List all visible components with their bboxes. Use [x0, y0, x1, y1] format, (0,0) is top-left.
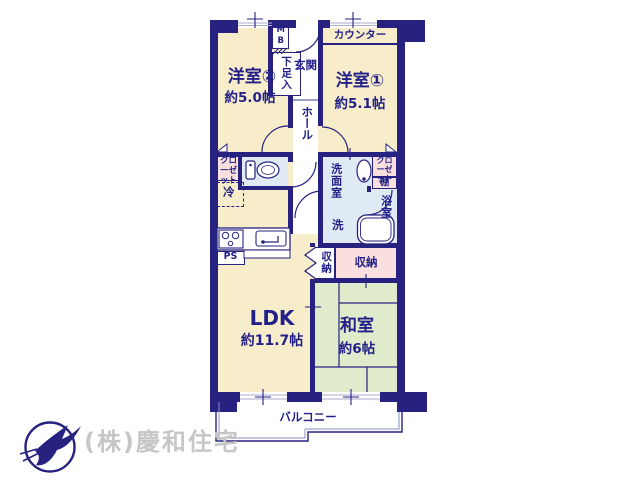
company-name: (株)慶和住宅	[84, 429, 240, 457]
entrance-label: 玄関	[294, 59, 317, 72]
wall-segment	[310, 243, 315, 247]
window-opening	[238, 20, 272, 28]
wall-segment	[367, 186, 371, 192]
room1-size: 約5.1帖	[320, 97, 400, 113]
closet-left-label: クローゼット	[217, 157, 240, 186]
wall-segment	[288, 186, 293, 234]
ldk-name: LDK	[222, 307, 322, 330]
entrance-step-line	[293, 99, 318, 101]
washitsu-name: 和室	[316, 317, 398, 337]
floorplan-page: 洋室② 約5.0帖 洋室① 約5.1帖 カウンター MB 下足入 玄関 ホール …	[0, 0, 640, 480]
room2-size: 約5.0帖	[210, 91, 290, 107]
window-opening	[330, 20, 377, 28]
ldk-size: 約11.7帖	[222, 333, 322, 349]
hall-label: ホール	[300, 106, 313, 141]
shoe-cabinet-label: 下足入	[280, 56, 292, 91]
wall-segment	[287, 392, 322, 402]
wall-segment	[210, 392, 237, 412]
wall-segment	[318, 243, 397, 247]
window-opening	[240, 392, 287, 402]
balcony-label: バルコニー	[258, 411, 358, 424]
storage-hall-label: 収納	[320, 251, 332, 274]
refrigerator-label: 冷	[223, 186, 235, 199]
washitsu-size: 約6帖	[316, 342, 398, 358]
wall-segment	[238, 186, 293, 190]
room1-name: 洋室①	[320, 72, 400, 92]
floor-toilet	[242, 157, 288, 186]
counter-label: カウンター	[323, 29, 397, 41]
bird-in-circle-icon	[20, 423, 81, 472]
washroom-label: 洗面室	[329, 163, 342, 199]
bathroom-label: 浴室	[379, 195, 392, 219]
pipe-space-label: PS	[216, 252, 245, 263]
wall-segment	[377, 20, 398, 28]
storage-washitsu-label: 収納	[335, 256, 397, 269]
wall-segment	[397, 392, 427, 412]
meter-box-label: MB	[275, 25, 285, 47]
window-opening	[322, 392, 380, 402]
wall-segment	[310, 279, 397, 283]
washing-machine-label: 洗	[332, 219, 344, 232]
counter-line	[323, 43, 397, 45]
shelf-label: 棚	[372, 178, 397, 189]
wall-segment	[318, 153, 323, 247]
